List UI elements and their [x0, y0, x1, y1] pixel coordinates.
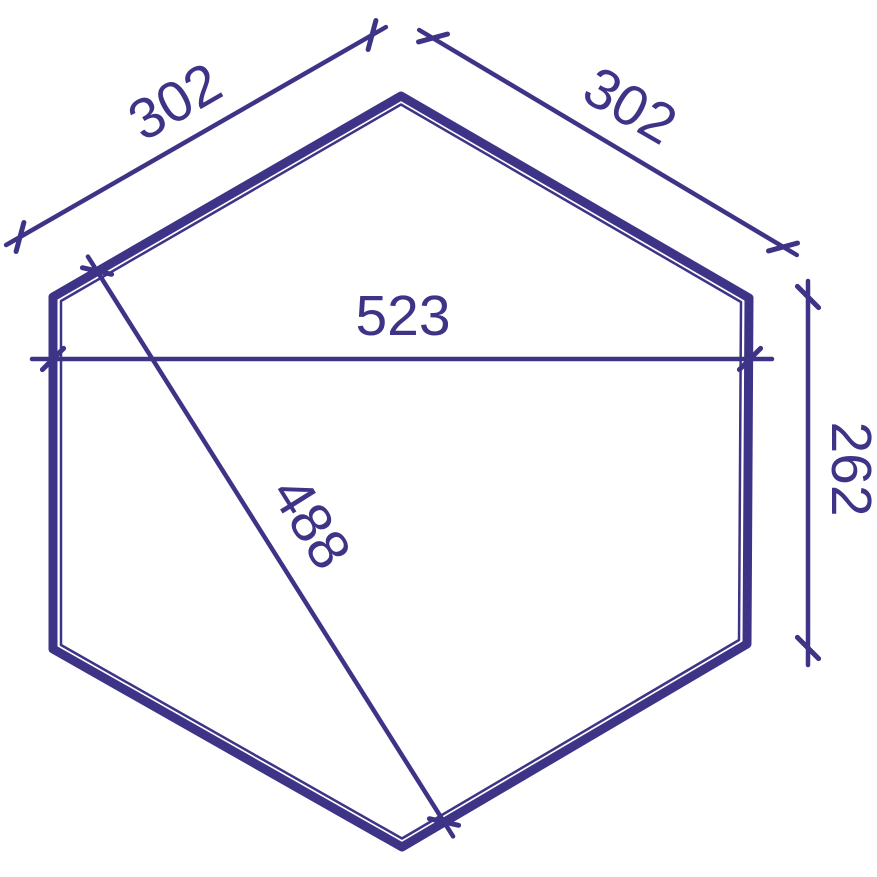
hexagon-inner-line: [61, 105, 741, 839]
hexagon-dimension-drawing: 302 302 523 488 262: [0, 0, 877, 877]
dimension-label-width: 523: [355, 284, 450, 348]
drawing-strokes: 302 302 523 488 262: [6, 21, 877, 848]
dimension-right-side: [797, 281, 818, 665]
dimension-label-right-side: 262: [819, 421, 877, 516]
drawing-canvas: 302 302 523 488 262: [0, 0, 877, 877]
dimension-labels: 302 302 523 488 262: [118, 51, 877, 581]
hexagon-outline: [53, 96, 749, 847]
hexagon-outer-wall: [53, 96, 749, 847]
dimension-width: [32, 348, 772, 369]
dimension-label-top-right: 302: [573, 55, 687, 158]
dimension-label-top-left: 302: [118, 51, 232, 154]
dimension-label-diagonal: 488: [259, 466, 364, 581]
